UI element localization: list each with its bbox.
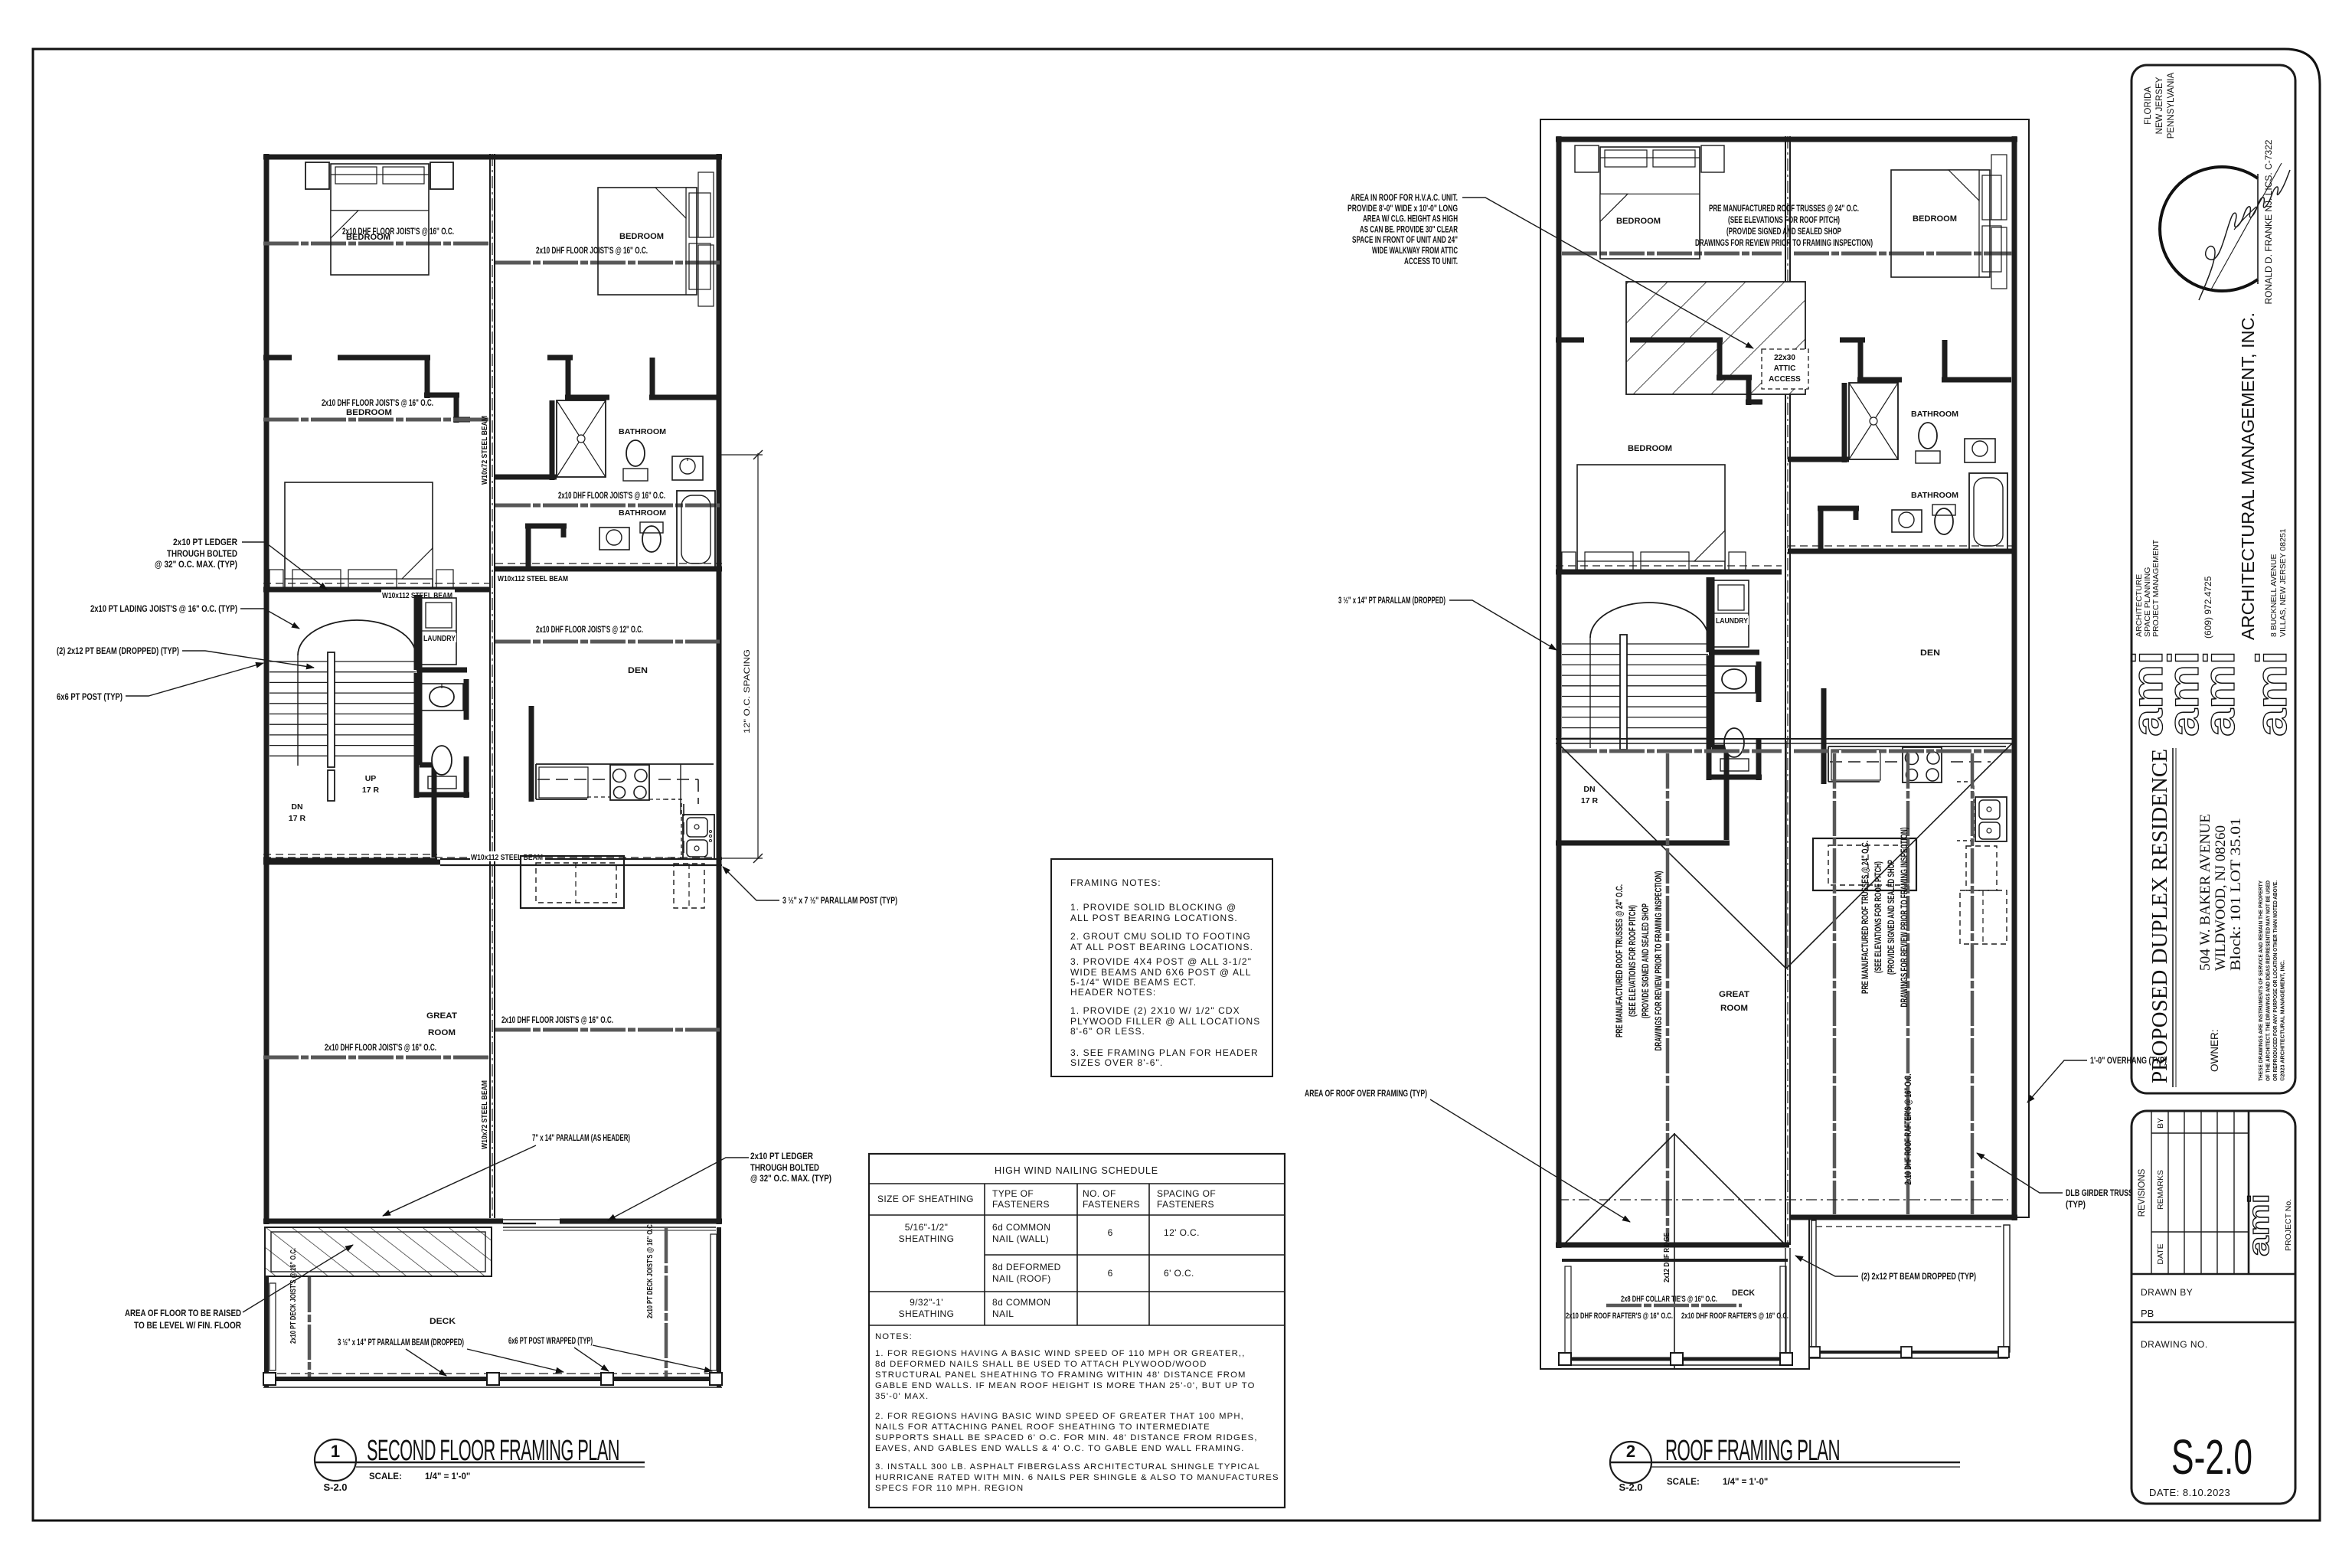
svg-text:7" x 14" PARALLAM (AS HEADER): 7" x 14" PARALLAM (AS HEADER) — [532, 1134, 630, 1143]
svg-text:ACCESS TO UNIT.: ACCESS TO UNIT. — [1404, 257, 1458, 266]
svg-text:NAIL: NAIL — [992, 1308, 1014, 1319]
svg-text:LAUNDRY: LAUNDRY — [423, 635, 456, 643]
svg-text:3 ½" x 14" PT PARALLAM BEAM (D: 3 ½" x 14" PT PARALLAM BEAM (DROPPED) — [338, 1338, 464, 1347]
svg-text:ROOF FRAMING PLAN: ROOF FRAMING PLAN — [1665, 1435, 1840, 1467]
svg-text:12' O.C.: 12' O.C. — [1164, 1227, 1200, 1238]
svg-text:@ 32" O.C. MAX. (TYP): @ 32" O.C. MAX. (TYP) — [750, 1174, 831, 1184]
svg-text:3. PROVIDE 4X4 POST @ ALL 3-1/: 3. PROVIDE 4X4 POST @ ALL 3-1/2" — [1070, 956, 1252, 967]
svg-text:ALL POST BEARING LOCATIONS.: ALL POST BEARING LOCATIONS. — [1070, 913, 1238, 923]
svg-text:S-2.0: S-2.0 — [1619, 1481, 1642, 1493]
svg-text:(SEE ELEVATIONS FOR ROOF PITCH: (SEE ELEVATIONS FOR ROOF PITCH) — [1728, 216, 1840, 225]
svg-text:ACCESS: ACCESS — [1769, 375, 1801, 384]
svg-text:3. SEE FRAMING PLAN FOR HEADER: 3. SEE FRAMING PLAN FOR HEADER — [1070, 1047, 1259, 1058]
svg-text:5-1/4" WIDE BEAMS ECT.: 5-1/4" WIDE BEAMS ECT. — [1070, 977, 1197, 988]
svg-text:ami: ami — [2247, 651, 2295, 737]
svg-text:2x10 DHF ROOF RAFTER'S @ 16" O: 2x10 DHF ROOF RAFTER'S @ 16" O.C. — [1681, 1312, 1788, 1321]
svg-text:TO BE LEVEL W/ FIN. FLOOR: TO BE LEVEL W/ FIN. FLOOR — [134, 1321, 242, 1331]
svg-text:NAILS FOR ATTACHING PANEL ROOF: NAILS FOR ATTACHING PANEL ROOF SHEATHING… — [875, 1423, 1210, 1432]
svg-text:DRAWN BY: DRAWN BY — [2141, 1287, 2193, 1298]
svg-text:WIDE WALKWAY FROM ATTIC: WIDE WALKWAY FROM ATTIC — [1372, 247, 1458, 256]
svg-text:2x10 DHF ROOF RAFTER'S @ 16" O: 2x10 DHF ROOF RAFTER'S @ 16" O.C. — [1904, 1074, 1913, 1185]
svg-text:2x10 PT DECK JOIST'S @ 16" O.C: 2x10 PT DECK JOIST'S @ 16" O.C. — [645, 1223, 655, 1318]
svg-text:ATTIC: ATTIC — [1774, 364, 1796, 373]
svg-text:1. PROVIDE (2) 2X10 W/ 1/2" CD: 1. PROVIDE (2) 2X10 W/ 1/2" CDX — [1070, 1005, 1240, 1016]
svg-text:6: 6 — [1108, 1227, 1113, 1238]
svg-text:NEW JERSEY: NEW JERSEY — [2155, 77, 2164, 134]
svg-text:W10x112 STEEL BEAM: W10x112 STEEL BEAM — [471, 853, 543, 862]
svg-text:BEDROOM: BEDROOM — [1913, 214, 1957, 224]
svg-text:6: 6 — [1108, 1268, 1113, 1279]
svg-text:HEADER NOTES:: HEADER NOTES: — [1070, 987, 1156, 998]
svg-text:17 R: 17 R — [362, 786, 380, 795]
svg-text:(PROVIDE SIGNED AND SEALED SHO: (PROVIDE SIGNED AND SEALED SHOP — [1641, 903, 1651, 1018]
svg-text:ROOM: ROOM — [428, 1028, 456, 1037]
svg-text:NAIL (ROOF): NAIL (ROOF) — [992, 1273, 1051, 1284]
svg-text:DECK: DECK — [1732, 1289, 1755, 1298]
svg-text:S-2.0: S-2.0 — [2171, 1429, 2252, 1485]
svg-text:(PROVIDE SIGNED AND SEALED SHO: (PROVIDE SIGNED AND SEALED SHOP — [1887, 860, 1896, 975]
svg-text:AREA IN ROOF FOR H.V.A.C. UNIT: AREA IN ROOF FOR H.V.A.C. UNIT. — [1351, 194, 1458, 203]
svg-text:PROJECT MANAGEMENT: PROJECT MANAGEMENT — [2151, 539, 2161, 637]
svg-text:SIZES OVER 8'-6".: SIZES OVER 8'-6". — [1070, 1057, 1163, 1068]
svg-text:(609) 972.4725: (609) 972.4725 — [2203, 576, 2213, 639]
svg-text:DN: DN — [1583, 785, 1595, 794]
svg-text:THESE DRAWINGS ARE INSTRUMENTS: THESE DRAWINGS ARE INSTRUMENTS OF SERVIC… — [2257, 880, 2264, 1081]
svg-text:NOTES:: NOTES: — [875, 1332, 913, 1341]
svg-text:17 R: 17 R — [289, 814, 306, 823]
svg-text:ROOM: ROOM — [1720, 1004, 1748, 1013]
svg-text:2x10 DHF FLOOR JOIST'S @ 12" O: 2x10 DHF FLOOR JOIST'S @ 12" O.C. — [536, 626, 643, 635]
svg-text:2x10 PT LEDGER: 2x10 PT LEDGER — [750, 1152, 814, 1161]
svg-text:6' O.C.: 6' O.C. — [1164, 1268, 1194, 1279]
svg-text:3 ½" x 14" PT PARALLAM (DROPPE: 3 ½" x 14" PT PARALLAM (DROPPED) — [1338, 596, 1445, 606]
svg-text:SUPPORTS SHALL BE SPACED 6' O.: SUPPORTS SHALL BE SPACED 6' O.C. FOR MIN… — [875, 1433, 1258, 1442]
svg-text:WIDE BEAMS AND 6X6 POST @ ALL: WIDE BEAMS AND 6X6 POST @ ALL — [1070, 967, 1252, 978]
svg-text:DN: DN — [291, 802, 302, 812]
svg-text:BEDROOM: BEDROOM — [619, 232, 664, 241]
svg-text:(SEE ELEVATIONS FOR ROOF PITCH: (SEE ELEVATIONS FOR ROOF PITCH) — [1874, 861, 1883, 973]
svg-text:1/4" = 1'-0": 1/4" = 1'-0" — [1723, 1478, 1768, 1487]
svg-text:8d DEFORMED NAILS SHALL BE USE: 8d DEFORMED NAILS SHALL BE USED TO ATTAC… — [875, 1360, 1207, 1369]
svg-text:8d COMMON: 8d COMMON — [992, 1297, 1050, 1308]
svg-text:PB: PB — [2141, 1308, 2154, 1319]
svg-text:FASTENERS: FASTENERS — [1157, 1199, 1214, 1210]
svg-text:BATHROOM: BATHROOM — [1911, 491, 1958, 500]
svg-text:SCALE:: SCALE: — [1667, 1478, 1700, 1487]
svg-text:1: 1 — [331, 1442, 340, 1461]
svg-text:17 R: 17 R — [1581, 796, 1599, 805]
svg-text:ARCHITECTURAL MANAGEMENT, IN: ARCHITECTURAL MANAGEMENT, INC. — [2238, 312, 2258, 640]
svg-text:2x10 PT LEDGER: 2x10 PT LEDGER — [173, 538, 238, 547]
svg-text:OWNER:: OWNER: — [2209, 1030, 2220, 1073]
svg-text:W10x72 STEEL BEAM: W10x72 STEEL BEAM — [480, 416, 489, 485]
svg-text:2. GROUT CMU SOLID TO FOOTING: 2. GROUT CMU SOLID TO FOOTING — [1070, 931, 1251, 942]
svg-text:22x30: 22x30 — [1774, 354, 1795, 362]
svg-text:(2) 2x12 PT BEAM DROPPED (TYP): (2) 2x12 PT BEAM DROPPED (TYP) — [1861, 1272, 1976, 1282]
svg-text:BEDROOM: BEDROOM — [346, 408, 392, 417]
svg-text:1. FOR REGIONS HAVING A BASIC: 1. FOR REGIONS HAVING A BASIC WIND SPEED… — [875, 1349, 1246, 1358]
svg-text:3 ½" x 7 ½" PARALLAM POST (TYP: 3 ½" x 7 ½" PARALLAM POST (TYP) — [782, 897, 897, 906]
svg-text:@ 32" O.C. MAX. (TYP): @ 32" O.C. MAX. (TYP) — [155, 560, 237, 570]
svg-text:9/32"-1': 9/32"-1' — [910, 1297, 943, 1308]
svg-text:LAUNDRY: LAUNDRY — [1716, 617, 1748, 626]
svg-text:8 BUCKNELL AVENUE: 8 BUCKNELL AVENUE — [2269, 554, 2278, 637]
svg-text:UP: UP — [365, 774, 377, 783]
svg-text:DRAWINGS FOR REVIEW PRIOR TO F: DRAWINGS FOR REVIEW PRIOR TO FRAMING INS… — [1655, 871, 1664, 1050]
svg-text:FRAMING NOTES:: FRAMING NOTES: — [1070, 877, 1161, 888]
svg-text:PROVIDE 8'-0" WIDE x 10'-0" LO: PROVIDE 8'-0" WIDE x 10'-0" LONG — [1347, 204, 1458, 214]
svg-text:2x12 DHF RIDGE: 2x12 DHF RIDGE — [1662, 1233, 1671, 1282]
svg-text:OR REPRODUCED FOR ANY PURPOSE: OR REPRODUCED FOR ANY PURPOSE OR LOCATIO… — [2272, 880, 2278, 1081]
svg-text:DRAWINGS FOR REVIEW PRIOR TO F: DRAWINGS FOR REVIEW PRIOR TO FRAMING INS… — [1900, 827, 1909, 1007]
svg-text:BEDROOM: BEDROOM — [1628, 444, 1672, 453]
svg-text:2x8 DHF COLLAR TIE'S @ 16" O.C: 2x8 DHF COLLAR TIE'S @ 16" O.C. — [1621, 1295, 1717, 1304]
svg-text:NAIL (WALL): NAIL (WALL) — [992, 1233, 1049, 1244]
svg-text:2x10 PT LADING JOIST'S @ 16" O: 2x10 PT LADING JOIST'S @ 16" O.C. (TYP) — [90, 605, 237, 614]
svg-text:DLB GIRDER TRUSS: DLB GIRDER TRUSS — [2066, 1189, 2133, 1198]
svg-text:FASTENERS: FASTENERS — [992, 1199, 1050, 1210]
svg-text:2x10 DHF ROOF RAFTER'S @ 16" O: 2x10 DHF ROOF RAFTER'S @ 16" O.C. — [1566, 1312, 1673, 1321]
svg-text:GREAT: GREAT — [426, 1011, 457, 1021]
svg-text:DRAWING NO.: DRAWING NO. — [2141, 1339, 2208, 1350]
svg-text:VILLAS, NEW JERSEY 08251: VILLAS, NEW JERSEY 08251 — [2278, 528, 2288, 637]
svg-text:Block: 101 LOT 35.01: Block: 101 LOT 35.01 — [2228, 818, 2244, 971]
svg-text:SPACING OF: SPACING OF — [1157, 1188, 1216, 1199]
svg-text:BEDROOM: BEDROOM — [1616, 217, 1661, 226]
svg-text:3. INSTALL 300 LB. ASPHALT FIB: 3. INSTALL 300 LB. ASPHALT FIBERGLASS AR… — [875, 1462, 1260, 1472]
svg-text:AS CAN BE. PROVIDE 30" CLEAR: AS CAN BE. PROVIDE 30" CLEAR — [1360, 225, 1458, 234]
svg-text:SPACE IN FRONT OF UNIT AND 24": SPACE IN FRONT OF UNIT AND 24" — [1352, 236, 1458, 245]
svg-text:BY: BY — [2156, 1118, 2165, 1129]
svg-text:SCALE:: SCALE: — [369, 1472, 402, 1481]
svg-text:(SEE ELEVATIONS FOR ROOF PITCH: (SEE ELEVATIONS FOR ROOF PITCH) — [1628, 905, 1638, 1017]
svg-text:2x10 DHF FLOOR JOIST'S @ 16" O: 2x10 DHF FLOOR JOIST'S @ 16" O.C. — [342, 227, 454, 237]
svg-text:PRE MANUFACTURED ROOF TRUSSES: PRE MANUFACTURED ROOF TRUSSES @ 24" O.C. — [1861, 841, 1870, 994]
svg-text:ami: ami — [2243, 1194, 2275, 1256]
svg-text:6x6 PT POST (TYP): 6x6 PT POST (TYP) — [57, 693, 122, 702]
svg-text:SHEATHING: SHEATHING — [899, 1233, 955, 1244]
svg-text:STRUCTURAL PANEL SHEATHING TO: STRUCTURAL PANEL SHEATHING TO FRAMING WI… — [875, 1370, 1246, 1380]
svg-text:PROPOSED DUPLEX RESIDENCE: PROPOSED DUPLEX RESIDENCE — [2148, 749, 2172, 1083]
svg-text:2x10 DHF FLOOR JOIST'S @ 16" O: 2x10 DHF FLOOR JOIST'S @ 16" O.C. — [536, 247, 648, 256]
svg-text:35'-0' MAX.: 35'-0' MAX. — [875, 1392, 929, 1401]
svg-text:6d COMMON: 6d COMMON — [992, 1222, 1050, 1233]
svg-text:2x10 PT DECK JOIST'S @ 16" O.C: 2x10 PT DECK JOIST'S @ 16" O.C. — [289, 1248, 298, 1344]
svg-text:AT ALL POST BEARING LOCATIONS.: AT ALL POST BEARING LOCATIONS. — [1070, 942, 1253, 952]
svg-text:ami: ami — [2195, 651, 2243, 737]
svg-text:PLYWOOD FILLER @ ALL LOCATIONS: PLYWOOD FILLER @ ALL LOCATIONS — [1070, 1016, 1260, 1027]
svg-text:DRAWINGS FOR REVIEW PRIOR TO F: DRAWINGS FOR REVIEW PRIOR TO FRAMING INS… — [1695, 239, 1873, 248]
svg-text:TYPE OF: TYPE OF — [992, 1188, 1034, 1199]
svg-text:(2) 2x12 PT BEAM (DROPPED) (TY: (2) 2x12 PT BEAM (DROPPED) (TYP) — [57, 647, 179, 656]
svg-text:PRE MANUFACTURED ROOF TRUSSES: PRE MANUFACTURED ROOF TRUSSES @ 24" O.C. — [1615, 884, 1625, 1037]
svg-text:SECOND FLOOR FRAMING PLAN: SECOND FLOOR FRAMING PLAN — [367, 1435, 619, 1467]
svg-text:5/16"-1/2": 5/16"-1/2" — [905, 1222, 949, 1233]
svg-text:GABLE END WALLS. IF MEAN ROOF: GABLE END WALLS. IF MEAN ROOF HEIGHT IS … — [875, 1381, 1256, 1390]
svg-text:2: 2 — [1626, 1442, 1635, 1461]
svg-text:DATE: DATE — [2156, 1243, 2165, 1264]
svg-text:SPECS FOR 110 MPH. REGION: SPECS FOR 110 MPH. REGION — [875, 1484, 1024, 1493]
svg-text:504 W. BAKER AVENUE: 504 W. BAKER AVENUE — [2197, 814, 2213, 971]
svg-text:DATE: 8.10.2023: DATE: 8.10.2023 — [2149, 1487, 2230, 1498]
svg-text:(TYP): (TYP) — [2066, 1200, 2086, 1210]
svg-text:2x10 DHF FLOOR JOIST'S @ 16" O: 2x10 DHF FLOOR JOIST'S @ 16" O.C. — [558, 492, 665, 501]
svg-text:FASTENERS: FASTENERS — [1083, 1199, 1140, 1210]
svg-text:PRE MANUFACTURED ROOF TRUSSES: PRE MANUFACTURED ROOF TRUSSES @ 24" O.C. — [1709, 204, 1859, 214]
svg-text:8'-6" OR LESS.: 8'-6" OR LESS. — [1070, 1026, 1145, 1037]
svg-text:REVISIONS: REVISIONS — [2138, 1168, 2147, 1217]
svg-text:1. PROVIDE SOLID BLOCKING @: 1. PROVIDE SOLID BLOCKING @ — [1070, 902, 1236, 913]
svg-text:1/4" = 1'-0": 1/4" = 1'-0" — [425, 1472, 470, 1481]
svg-text:W10x72 STEEL BEAM: W10x72 STEEL BEAM — [480, 1080, 489, 1149]
svg-text:AREA OF FLOOR TO BE RAISED: AREA OF FLOOR TO BE RAISED — [125, 1309, 241, 1318]
svg-text:PROJECT No.: PROJECT No. — [2284, 1199, 2293, 1251]
svg-text:THROUGH BOLTED: THROUGH BOLTED — [167, 550, 237, 559]
svg-text:THROUGH BOLTED: THROUGH BOLTED — [750, 1164, 819, 1173]
svg-text:©2023 ARCHITECTURAL MANAGEMENT: ©2023 ARCHITECTURAL MANAGEMENT, INC. — [2279, 960, 2286, 1081]
svg-text:2x10 DHF FLOOR JOIST'S @ 16" O: 2x10 DHF FLOOR JOIST'S @ 16" O.C. — [501, 1016, 613, 1025]
svg-text:FLORIDA: FLORIDA — [2144, 87, 2153, 125]
svg-text:12" O.C. SPACING: 12" O.C. SPACING — [743, 649, 752, 733]
svg-text:2x10 DHF FLOOR JOIST'S @ 16" O: 2x10 DHF FLOOR JOIST'S @ 16" O.C. — [325, 1044, 436, 1053]
svg-text:WILDWOOD, NJ 08260: WILDWOOD, NJ 08260 — [2213, 825, 2229, 971]
svg-text:REMARKS: REMARKS — [2156, 1170, 2165, 1210]
svg-text:OF THE ARCHITECT. THE DRAWINGS: OF THE ARCHITECT. THE DRAWINGS AND IDEAS… — [2265, 880, 2272, 1081]
svg-text:BATHROOM: BATHROOM — [619, 508, 666, 518]
svg-text:HURRICANE RATED WITH MIN. 6 NA: HURRICANE RATED WITH MIN. 6 NAILS PER SH… — [875, 1473, 1279, 1482]
svg-text:8d DEFORMED: 8d DEFORMED — [992, 1262, 1061, 1272]
svg-text:SHEATHING: SHEATHING — [899, 1308, 955, 1319]
svg-text:2x10 DHF FLOOR JOIST'S @ 16" O: 2x10 DHF FLOOR JOIST'S @ 16" O.C. — [322, 399, 433, 408]
svg-text:BATHROOM: BATHROOM — [1911, 410, 1958, 419]
svg-text:AREA W/ CLG. HEIGHT AS HIGH: AREA W/ CLG. HEIGHT AS HIGH — [1363, 215, 1458, 224]
svg-text:S-2.0: S-2.0 — [323, 1481, 347, 1493]
svg-text:SIZE OF SHEATHING: SIZE OF SHEATHING — [877, 1194, 974, 1204]
svg-text:2. FOR REGIONS HAVING BASIC WI: 2. FOR REGIONS HAVING BASIC WIND SPEED O… — [875, 1412, 1244, 1421]
svg-text:BATHROOM: BATHROOM — [619, 427, 666, 436]
svg-text:DEN: DEN — [628, 666, 648, 675]
svg-text:DEN: DEN — [1920, 648, 1940, 658]
svg-text:PENNSYLVANIA: PENNSYLVANIA — [2167, 72, 2176, 139]
svg-text:6x6 PT POST WRAPPED (TYP): 6x6 PT POST WRAPPED (TYP) — [508, 1337, 593, 1346]
svg-text:AREA OF ROOF OVER FRAMING (TYP: AREA OF ROOF OVER FRAMING (TYP) — [1305, 1089, 1427, 1099]
svg-text:RONALD D. FRANKE NJ. LICS. C-7: RONALD D. FRANKE NJ. LICS. C-7322 — [2263, 139, 2274, 304]
svg-text:EAVES, AND GABLES END WALLS &: EAVES, AND GABLES END WALLS & 4' O.C. TO… — [875, 1444, 1245, 1453]
svg-text:(PROVIDE SIGNED AND SEALED SHO: (PROVIDE SIGNED AND SEALED SHOP — [1726, 227, 1841, 237]
svg-text:NO. OF: NO. OF — [1083, 1188, 1116, 1199]
svg-text:HIGH WIND NAILING SCHEDULE: HIGH WIND NAILING SCHEDULE — [995, 1165, 1158, 1176]
svg-text:GREAT: GREAT — [1719, 990, 1749, 999]
svg-text:W10x112 STEEL BEAM: W10x112 STEEL BEAM — [498, 574, 568, 583]
svg-text:DECK: DECK — [430, 1317, 456, 1326]
